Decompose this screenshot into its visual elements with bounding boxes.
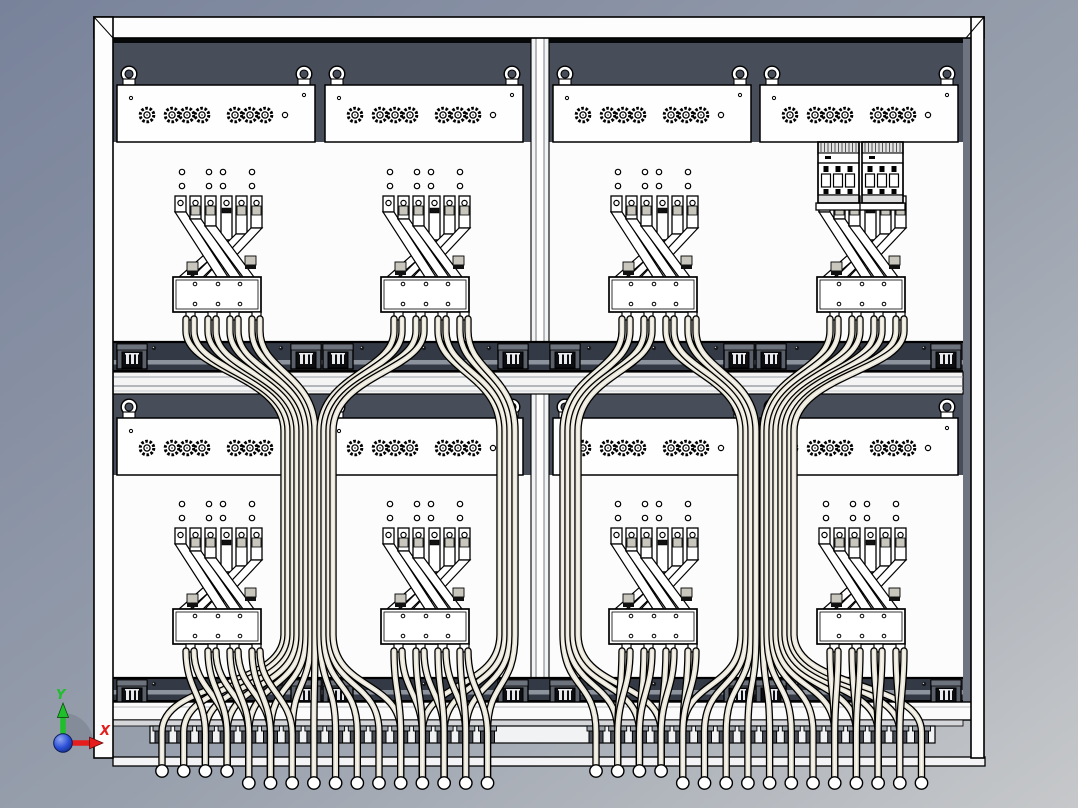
cad-viewport[interactable]: YX <box>0 0 1078 808</box>
cad-canvas: YX <box>0 0 1078 808</box>
axis-x-label: X <box>99 724 111 739</box>
axis-y-label: Y <box>56 688 67 703</box>
